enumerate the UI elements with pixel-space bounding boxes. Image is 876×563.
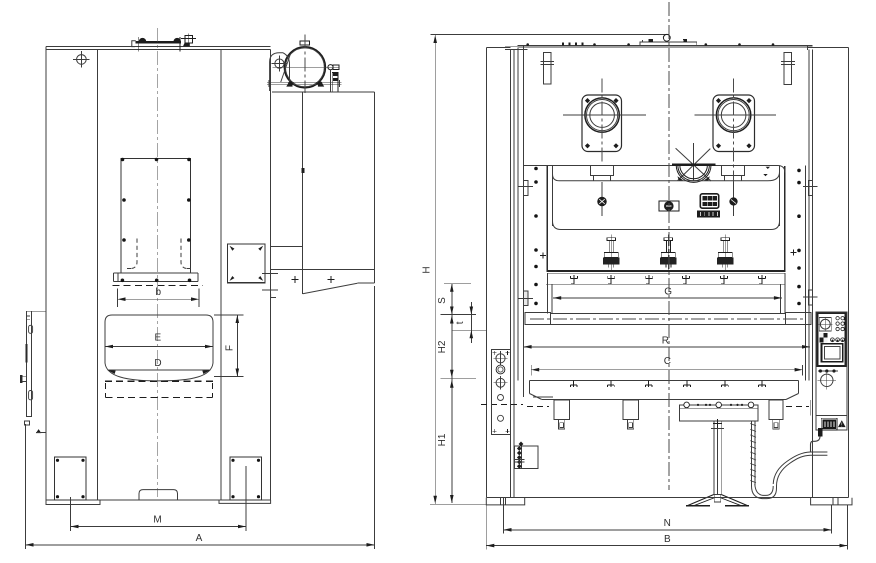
svg-text:!: ! [841, 422, 842, 428]
svg-text:N: N [664, 518, 671, 529]
svg-text:A: A [196, 533, 203, 544]
svg-text:S: S [437, 297, 448, 304]
svg-text:H1: H1 [437, 433, 448, 446]
svg-text:H: H [422, 266, 433, 273]
svg-text:R: R [662, 335, 669, 346]
svg-text:G: G [664, 286, 672, 297]
svg-text:M: M [153, 515, 161, 526]
svg-text:B: B [664, 534, 671, 545]
svg-text:H2: H2 [437, 340, 448, 353]
svg-text:C: C [664, 356, 671, 367]
svg-text:F: F [225, 345, 236, 351]
svg-text:b: b [156, 287, 162, 298]
svg-text:t: t [455, 321, 466, 324]
